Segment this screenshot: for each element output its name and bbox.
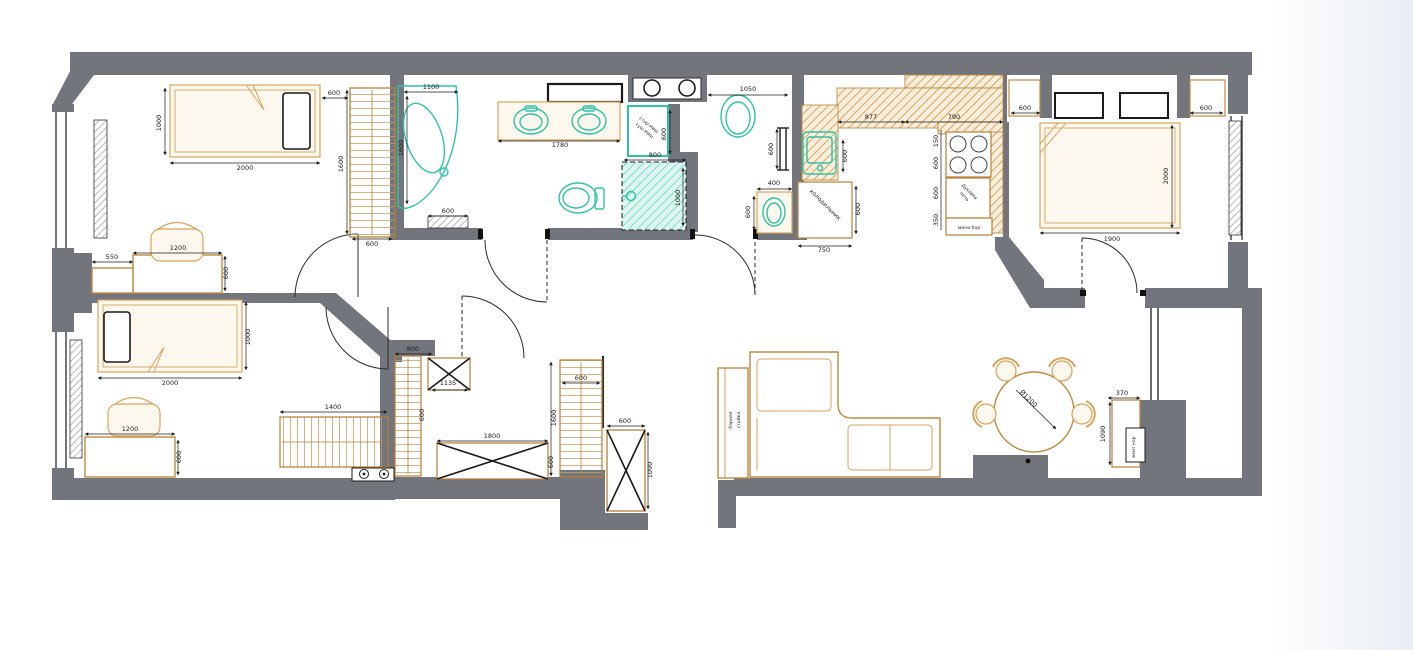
balcony-glazing bbox=[1151, 308, 1158, 400]
dimension-label: 600 bbox=[841, 150, 849, 162]
dimension-label: 1600 bbox=[397, 140, 405, 157]
dimension-label: 2000 bbox=[162, 379, 179, 387]
single-bed-icon bbox=[170, 85, 320, 157]
dimension-label: 600 bbox=[547, 456, 555, 468]
mirror-icon bbox=[548, 84, 622, 102]
window-bedroom2 bbox=[50, 332, 82, 468]
door-arc-bathroom bbox=[485, 240, 547, 302]
window-bedroom1 bbox=[50, 112, 107, 248]
storage-unit-icon bbox=[437, 443, 548, 479]
fridge-icon: холодильник bbox=[798, 182, 852, 238]
dimension-label: 1100 bbox=[423, 83, 440, 91]
dimension-label: 600 bbox=[932, 187, 940, 199]
dimension-label: 600 bbox=[1200, 104, 1212, 112]
dimension-label: 600 bbox=[1019, 104, 1031, 112]
sofa-icon bbox=[750, 352, 940, 477]
corner-bathtub-icon bbox=[396, 86, 458, 208]
dimension-label: 600 bbox=[366, 240, 378, 248]
bar-label-2: стойка bbox=[735, 412, 742, 429]
dimension-label: 600 bbox=[328, 89, 340, 97]
radiator-icon bbox=[70, 340, 82, 458]
dimension-label: 1900 bbox=[1104, 235, 1121, 243]
door-arc-hall bbox=[695, 235, 755, 295]
dimension-label: 1400 bbox=[325, 403, 342, 411]
pillow-icon bbox=[104, 312, 130, 362]
minibar-icon: мини бар bbox=[946, 218, 992, 235]
double-bed-icon bbox=[1040, 123, 1180, 228]
nightstand-icon bbox=[1055, 93, 1103, 118]
dimension-label: 600 bbox=[744, 206, 752, 218]
dimension-label: 1135 bbox=[440, 379, 457, 387]
chair-icon bbox=[151, 223, 203, 262]
sink-icon bbox=[757, 192, 792, 233]
dimension-label: 600 bbox=[767, 143, 775, 155]
window-master bbox=[1226, 114, 1250, 242]
nightstand-icon bbox=[1120, 93, 1168, 118]
dining-chair-icon bbox=[1072, 401, 1095, 427]
towel-radiator-icon bbox=[777, 128, 789, 170]
dimension-label: 370 bbox=[1116, 389, 1128, 397]
dimension-label: 1780 bbox=[552, 141, 569, 149]
toilet-icon bbox=[559, 183, 604, 213]
dimension-label: 1800 bbox=[484, 432, 501, 440]
dimension-label: 600 bbox=[222, 267, 230, 279]
desk-icon bbox=[85, 437, 175, 477]
dimension-label: 877 bbox=[865, 113, 877, 121]
dimension-label: 1090 bbox=[1099, 426, 1107, 443]
vent-label: вент кор bbox=[1132, 436, 1137, 457]
bar-label-1: барная bbox=[728, 411, 734, 428]
dimension-label: 1000 bbox=[244, 329, 252, 346]
dimension-label: 2000 bbox=[1162, 168, 1170, 185]
dimension-label: 1600 bbox=[337, 156, 345, 173]
tv-console bbox=[973, 455, 1048, 481]
dimension-label: 600 bbox=[418, 409, 426, 421]
tall-cabinet-icon bbox=[607, 430, 645, 511]
radiator-icon bbox=[94, 120, 107, 238]
dimension-label: 790 bbox=[948, 113, 960, 121]
vestibule bbox=[607, 430, 645, 511]
dimension-label: 600 bbox=[575, 374, 587, 382]
dimension-label: 800 bbox=[407, 345, 419, 353]
dimension-label: 1200 bbox=[170, 244, 187, 252]
room-living-dining: барная стойка Ø1200 bbox=[718, 352, 1145, 478]
door-arc-bedroom1 bbox=[295, 234, 358, 297]
door-arc-master bbox=[1082, 238, 1137, 293]
page-margin bbox=[1270, 0, 1413, 650]
dimension-label: 1090 bbox=[646, 462, 654, 479]
wardrobe-icon bbox=[350, 88, 395, 237]
dimension-label: 400 bbox=[768, 179, 780, 187]
room-bedroom-1 bbox=[92, 85, 395, 293]
room-bathroom: стир маш суш маш bbox=[396, 84, 686, 230]
minibar-label: мини бар bbox=[958, 225, 981, 231]
bar-counter: барная стойка bbox=[718, 368, 748, 478]
dimension-label: 350 bbox=[932, 214, 940, 226]
built-in-cabinet: вент кор bbox=[1112, 400, 1145, 467]
shaft-niche bbox=[633, 78, 701, 99]
door-arc-wardrobe bbox=[462, 296, 524, 358]
dimension-label: 1000 bbox=[674, 190, 682, 207]
dimension-label: 750 bbox=[818, 246, 830, 254]
dimension-label: 600 bbox=[854, 203, 862, 215]
cabinet-icon bbox=[92, 268, 133, 293]
dimension-label: 1000 bbox=[155, 115, 163, 132]
dimension-label: 2000 bbox=[237, 164, 254, 172]
room-wc bbox=[721, 95, 792, 233]
dining-table-icon: Ø1200 bbox=[994, 372, 1074, 452]
oven-icon: Духовка печь bbox=[946, 178, 990, 218]
dimension-label: 1050 bbox=[740, 85, 757, 93]
toilet-icon bbox=[721, 95, 755, 137]
bath-mat-icon bbox=[428, 216, 468, 228]
dining-chair-icon bbox=[973, 401, 996, 427]
dimension-label: 600 bbox=[932, 157, 940, 169]
dimension-label: 600 bbox=[175, 451, 183, 463]
dimension-label: 550 bbox=[106, 253, 118, 261]
room-kitchen: холодильник Духовка печь мини бар bbox=[798, 75, 1003, 238]
pillow-icon bbox=[283, 93, 310, 149]
dimension-label: 600 bbox=[442, 207, 454, 215]
dimension-label: 1600 bbox=[550, 410, 558, 427]
floor-plan: стир маш суш маш bbox=[0, 0, 1413, 650]
room-wardrobe bbox=[395, 356, 602, 479]
dimension-label: 150 bbox=[932, 135, 940, 147]
dimension-label: 600 bbox=[660, 128, 668, 140]
cooktop-icon bbox=[946, 132, 991, 177]
vanity-double-sink-icon bbox=[498, 84, 622, 140]
dimension-label: 1200 bbox=[122, 425, 139, 433]
shoe-bench-icon bbox=[352, 468, 394, 481]
dimension-label: 800 bbox=[649, 151, 661, 159]
dimension-label: 600 bbox=[619, 417, 631, 425]
floor-plan-canvas: стир маш суш маш bbox=[0, 0, 1413, 650]
vent-box: вент кор bbox=[1126, 428, 1145, 462]
single-bed-icon bbox=[98, 300, 242, 372]
